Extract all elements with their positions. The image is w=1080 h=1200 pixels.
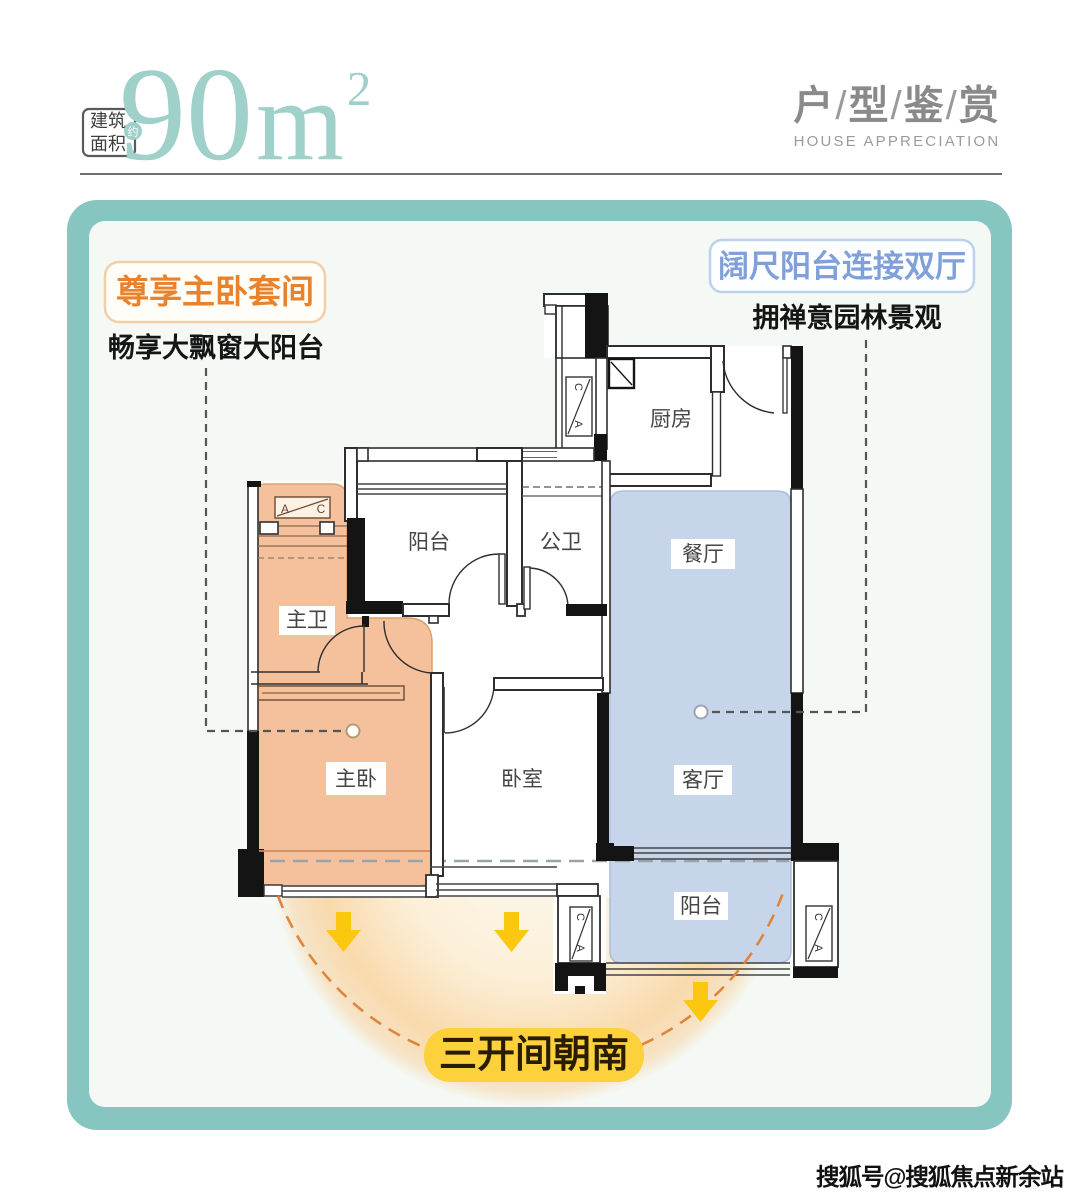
svg-text:主卫: 主卫 [286, 609, 328, 632]
svg-text:餐厅: 餐厅 [682, 543, 724, 566]
svg-text:厨房: 厨房 [650, 408, 692, 431]
svg-text:阔尺阳台连接双厅: 阔尺阳台连接双厅 [718, 249, 966, 284]
svg-text:搜狐号@搜狐焦点新余站: 搜狐号@搜狐焦点新余站 [816, 1163, 1063, 1190]
svg-text:A: A [812, 944, 824, 952]
svg-text:C: C [317, 502, 326, 516]
svg-text:尊享主卧套间: 尊享主卧套间 [116, 273, 314, 310]
svg-text:畅享大飘窗大阳台: 畅享大飘窗大阳台 [108, 332, 324, 363]
svg-text:A: A [281, 502, 289, 516]
svg-text:90m2: 90m2 [119, 40, 371, 188]
svg-text:HOUSE APPRECIATION: HOUSE APPRECIATION [794, 133, 1001, 150]
svg-text:阳台: 阳台 [680, 895, 722, 918]
svg-text:公卫: 公卫 [540, 531, 582, 554]
svg-text:拥禅意园林景观: 拥禅意园林景观 [753, 302, 942, 333]
svg-text:主卧: 主卧 [335, 768, 377, 791]
svg-text:客厅: 客厅 [682, 769, 724, 792]
svg-text:户/型/鉴/赏: 户/型/鉴/赏 [793, 84, 1000, 128]
svg-text:C: C [812, 913, 824, 921]
svg-text:阳台: 阳台 [408, 531, 450, 554]
svg-text:三开间朝南: 三开间朝南 [439, 1034, 629, 1076]
svg-text:C: C [574, 913, 586, 921]
svg-text:C: C [572, 383, 584, 391]
svg-text:A: A [572, 420, 584, 428]
svg-text:A: A [574, 944, 586, 952]
svg-text:卧室: 卧室 [501, 768, 543, 791]
